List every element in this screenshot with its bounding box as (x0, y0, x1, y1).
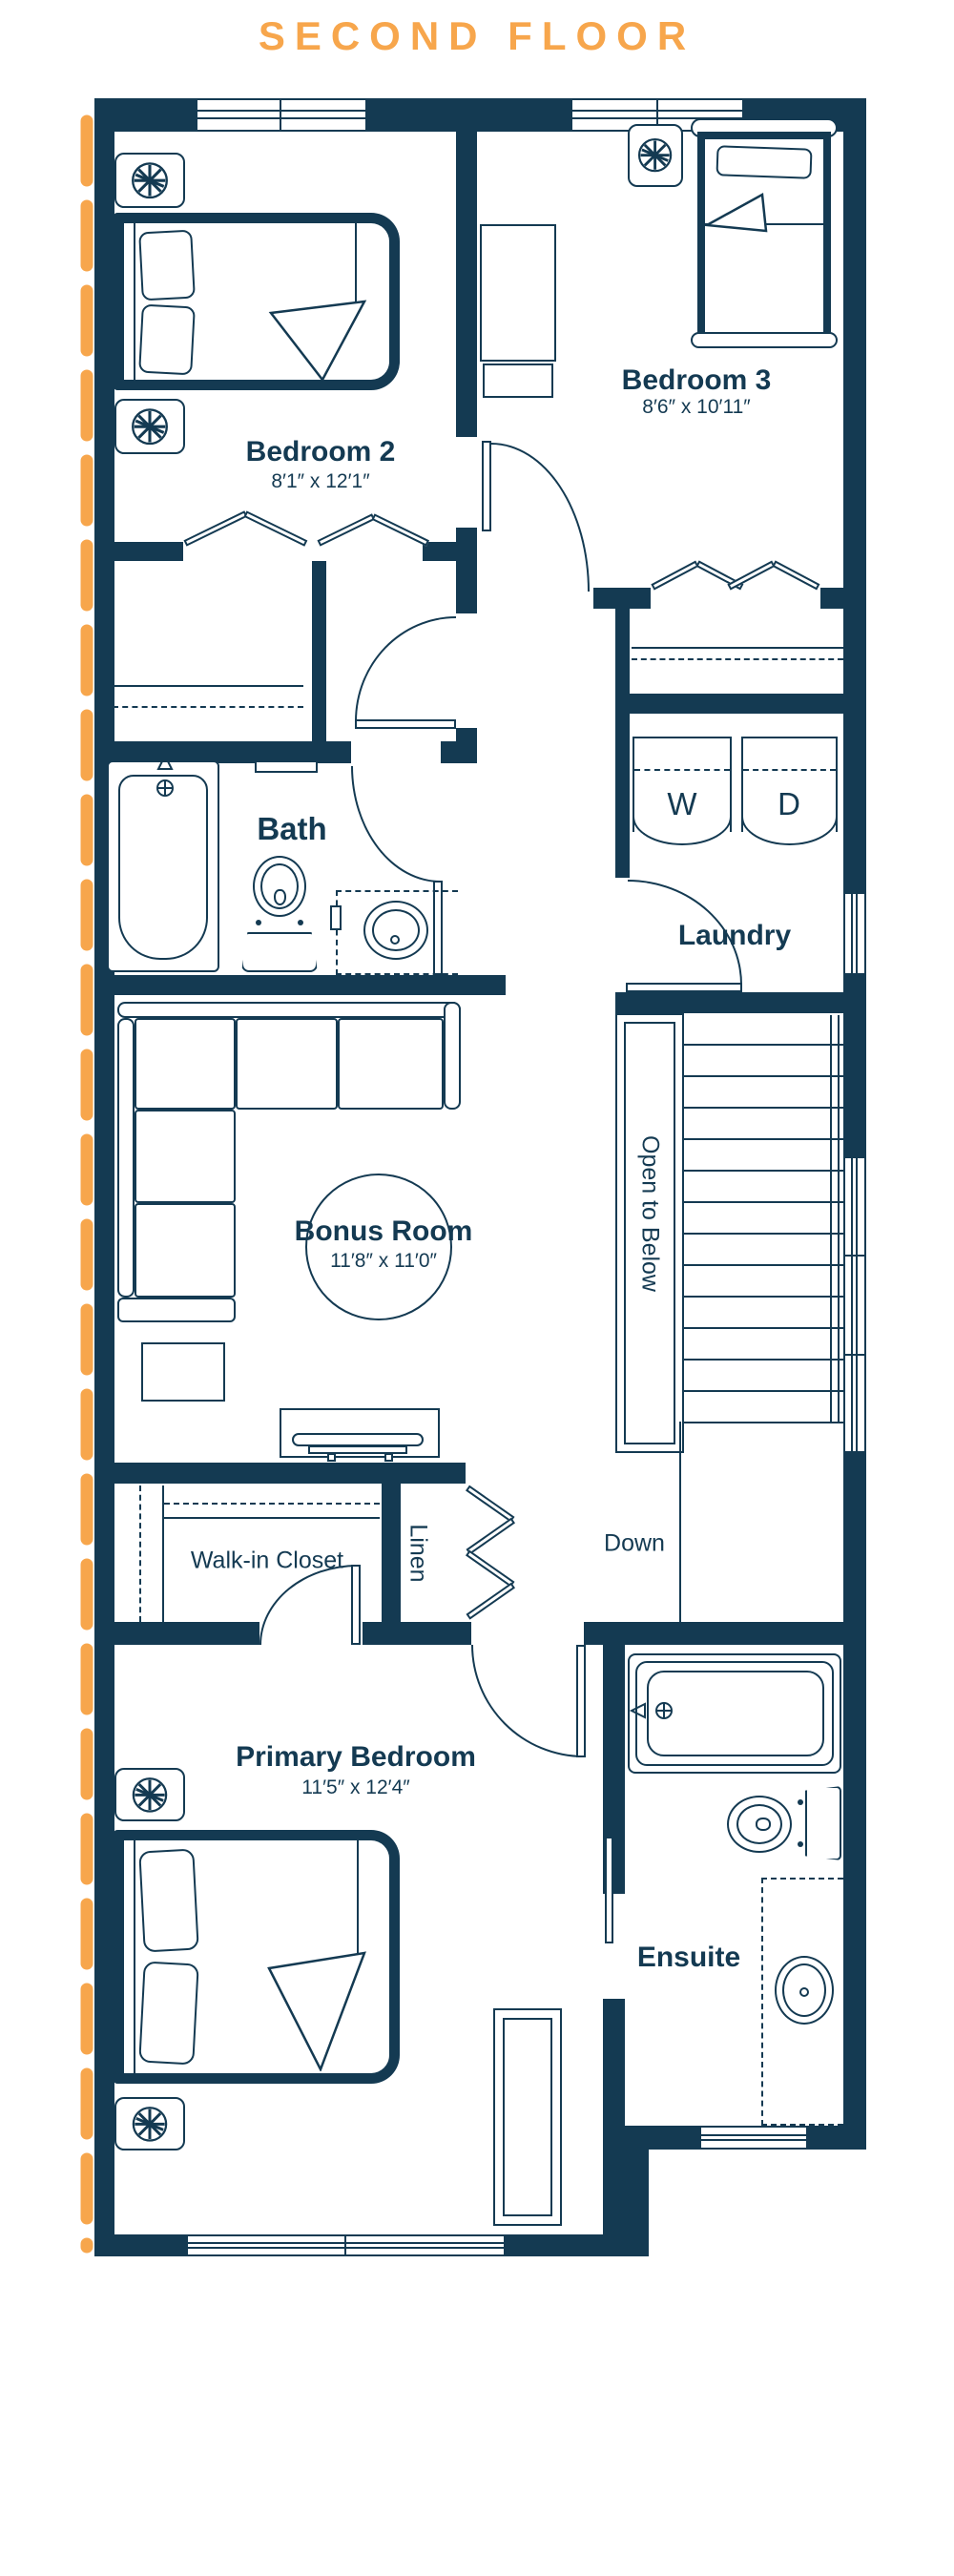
walkin-rod-left (139, 1485, 141, 1622)
wall-hall-closet (615, 609, 630, 878)
bath-sink-drain (390, 935, 400, 945)
toilet-hinge (798, 1841, 803, 1847)
bedroom3-bed (697, 132, 831, 340)
ensuite-toilet-flush (756, 1818, 771, 1831)
wall-primary-top-a (94, 1622, 259, 1645)
linen-bifold-2b (466, 1583, 515, 1620)
tub-faucet-icon (151, 754, 179, 803)
bed-pillow (138, 1962, 198, 2066)
ensuite-pocket-door-leaf (605, 1837, 613, 1943)
ceiling-fan-icon (114, 2097, 185, 2150)
stair-tread-2 (684, 1075, 843, 1077)
wall-primary-top-c (584, 1622, 844, 1645)
tv-foot (384, 1453, 393, 1462)
bedroom2-closet-shelf (113, 685, 303, 687)
bedroom2-dims: 8′1″ x 12′1″ (271, 470, 369, 493)
bath-towel-bar (255, 760, 318, 773)
wall-ensuite-left-b (603, 1999, 625, 2126)
bonus-dims: 11′8″ x 11′0″ (330, 1250, 437, 1273)
wall-ensuite-bottom-b (808, 2126, 866, 2150)
ensuite-label: Ensuite (637, 1942, 740, 1974)
stair-tread-1 (684, 1044, 843, 1046)
linen-label: Linen (404, 1524, 432, 1582)
primary-window-mullion (344, 2234, 346, 2256)
wall-bonus-bottom (94, 1463, 466, 1484)
ensuite-window (699, 2126, 808, 2150)
primary-dresser-inner (503, 2018, 552, 2216)
stair-tread-11 (684, 1359, 843, 1361)
bed-sheet-line (355, 223, 357, 309)
bath-door-arc (351, 766, 441, 883)
sofa-front (117, 1298, 236, 1322)
wall-closet-divider (312, 561, 326, 763)
bed-sheet-line (357, 1840, 359, 1955)
bath-sink-inner (372, 909, 420, 951)
sofa-cushion (135, 1203, 236, 1298)
wall-right-a (843, 98, 866, 892)
wall-right-c (843, 1453, 866, 2150)
hall-door-arc (355, 616, 456, 721)
stair-tread-3 (684, 1107, 843, 1109)
bed-sheet-fold (705, 193, 778, 235)
dryer-label: D (778, 786, 800, 822)
bedroom2-bed (114, 213, 400, 390)
ceiling-fan-icon (628, 124, 683, 187)
bedroom3-door-leaf (482, 441, 491, 531)
bed3-footboard (691, 332, 838, 348)
wall-laundry-stairs (615, 992, 844, 1013)
wall-ensuite-bottom-a (603, 2126, 699, 2150)
wall-bed3-bottom-b (820, 588, 844, 609)
dryer-dash (743, 769, 836, 771)
party-wall-dashes (80, 98, 94, 2256)
wall-step (603, 2150, 649, 2237)
sofa-arm-right (444, 1002, 461, 1110)
bedroom3-door-arc (491, 443, 590, 592)
wall-primary-top-b (363, 1622, 471, 1645)
stair-handrail (830, 1015, 840, 1422)
wall-bed2-hall (456, 528, 477, 613)
bed-pillow (715, 145, 812, 178)
bedroom3-bifold-2a (727, 561, 775, 591)
bedroom3-desk (480, 224, 556, 362)
primary-label: Primary Bedroom (236, 1741, 476, 1774)
page-title: SECOND FLOOR (259, 13, 695, 59)
linen-bifold-1b (466, 1518, 515, 1555)
primary-dims: 11′5″ x 12′4″ (301, 1776, 409, 1799)
linen-bifold-1a (466, 1485, 515, 1523)
ottoman (141, 1342, 225, 1402)
wall-bath-bottom (94, 975, 506, 995)
bedroom2-bifold-2b (371, 513, 429, 546)
stair-tread-12 (684, 1390, 843, 1392)
bedroom2-window-mullion (280, 98, 281, 132)
bedroom3-bifold-2b (772, 560, 819, 590)
hall-door-leaf (355, 719, 456, 729)
bed-headboard-line (134, 1840, 135, 2073)
bedroom2-bifold-1b (243, 510, 307, 546)
wall-bed2-bed3 (456, 132, 477, 437)
bed-sheet-fold (267, 298, 372, 382)
primary-door-leaf (576, 1645, 586, 1757)
bed-pillow (138, 1849, 198, 1953)
bedroom2-bifold-2a (317, 513, 375, 546)
laundry-label: Laundry (678, 920, 791, 952)
bedroom2-bifold-1a (183, 510, 247, 546)
primary-door-arc (471, 1645, 584, 1757)
wall-bath-top-b (441, 741, 477, 763)
bedroom3-bifold-1a (651, 561, 698, 591)
wall-linen-left (382, 1484, 401, 1622)
ceiling-fan-icon (114, 399, 185, 454)
bedroom2-label: Bedroom 2 (246, 436, 396, 468)
tub-faucet-icon (630, 1696, 679, 1725)
bed-sheet-fold (265, 1947, 372, 2071)
bath-label: Bath (257, 811, 326, 847)
bedroom2-window (196, 98, 367, 132)
ceiling-fan-icon (114, 153, 185, 208)
tv-screen (292, 1433, 424, 1446)
walkin-shelf-top (164, 1517, 380, 1519)
bedroom3-chair (483, 364, 553, 398)
walkin-rod-top (164, 1503, 380, 1505)
walkin-door-arc (259, 1565, 358, 1645)
sofa-cushion (338, 1018, 444, 1110)
walkin-label: Walk-in Closet (191, 1548, 343, 1575)
toilet-hinge (298, 920, 303, 925)
stair-tread-5 (684, 1170, 843, 1172)
walkin-shelf-left (162, 1485, 164, 1622)
sofa-cushion (236, 1018, 338, 1110)
stair-tread-8 (684, 1264, 843, 1266)
toilet-flush (274, 889, 286, 905)
ceiling-fan-icon (114, 1768, 185, 1821)
stair-tread-4 (684, 1138, 843, 1140)
bedroom3-closet-shelf (632, 647, 843, 649)
toilet-hinge (256, 920, 261, 925)
bed-pillow (138, 304, 196, 376)
toilet-hinge (798, 1799, 803, 1805)
tv-foot (327, 1453, 336, 1462)
wall-bed3-bottom-a (593, 588, 651, 609)
stairwell-window (843, 1156, 866, 1453)
bedroom3-closet-rod (632, 658, 843, 660)
wall-bottom-a (94, 2234, 186, 2256)
sofa-cushion (135, 1110, 236, 1203)
vanity-faucet (330, 905, 342, 930)
bedroom2-closet-rod (113, 706, 303, 708)
stair-bottom-edge (684, 1422, 843, 1423)
sofa-cushion (135, 1018, 236, 1110)
ensuite-sink-drain (799, 1987, 809, 1997)
sofa-back (117, 1002, 461, 1018)
primary-bed (114, 1830, 400, 2084)
stair-tread-6 (684, 1201, 843, 1203)
stair-void-edge (679, 1422, 681, 1638)
laundry-window (843, 892, 866, 975)
floor-plan: SECOND FLOOR (0, 0, 954, 2576)
wall-left (94, 98, 114, 2256)
bed-headboard-line (134, 223, 135, 380)
wall-bottom-b (506, 2234, 649, 2256)
stair-tread-7 (684, 1233, 843, 1235)
laundry-door-leaf (626, 983, 742, 992)
wall-bed2-closet-a (94, 542, 183, 561)
linen-bifold-2a (466, 1550, 515, 1588)
bedroom3-dims: 8′6″ x 10′11″ (642, 396, 750, 419)
stairwell-window-mullion-2 (843, 1354, 866, 1356)
bedroom3-label: Bedroom 3 (622, 364, 772, 397)
stair-tread-10 (684, 1327, 843, 1329)
open-to-below-label: Open to Below (636, 1135, 664, 1292)
bonus-label: Bonus Room (295, 1215, 473, 1248)
toilet-tank (241, 932, 318, 972)
wall-bed2-closet-b (423, 542, 477, 561)
walkin-door-leaf (351, 1565, 361, 1645)
washer-label: W (667, 786, 696, 822)
wall-top-b (367, 98, 570, 132)
ensuite-toilet-tank (805, 1786, 841, 1860)
down-label: Down (604, 1530, 665, 1558)
stair-tread-9 (684, 1296, 843, 1298)
wall-closet3-laundry (615, 694, 844, 714)
sofa-side-left (117, 1018, 135, 1298)
bed-pillow (138, 230, 196, 301)
wall-right-b (843, 975, 866, 1156)
stairwell-window-mullion-1 (843, 1255, 866, 1257)
washer-dash (634, 769, 730, 771)
